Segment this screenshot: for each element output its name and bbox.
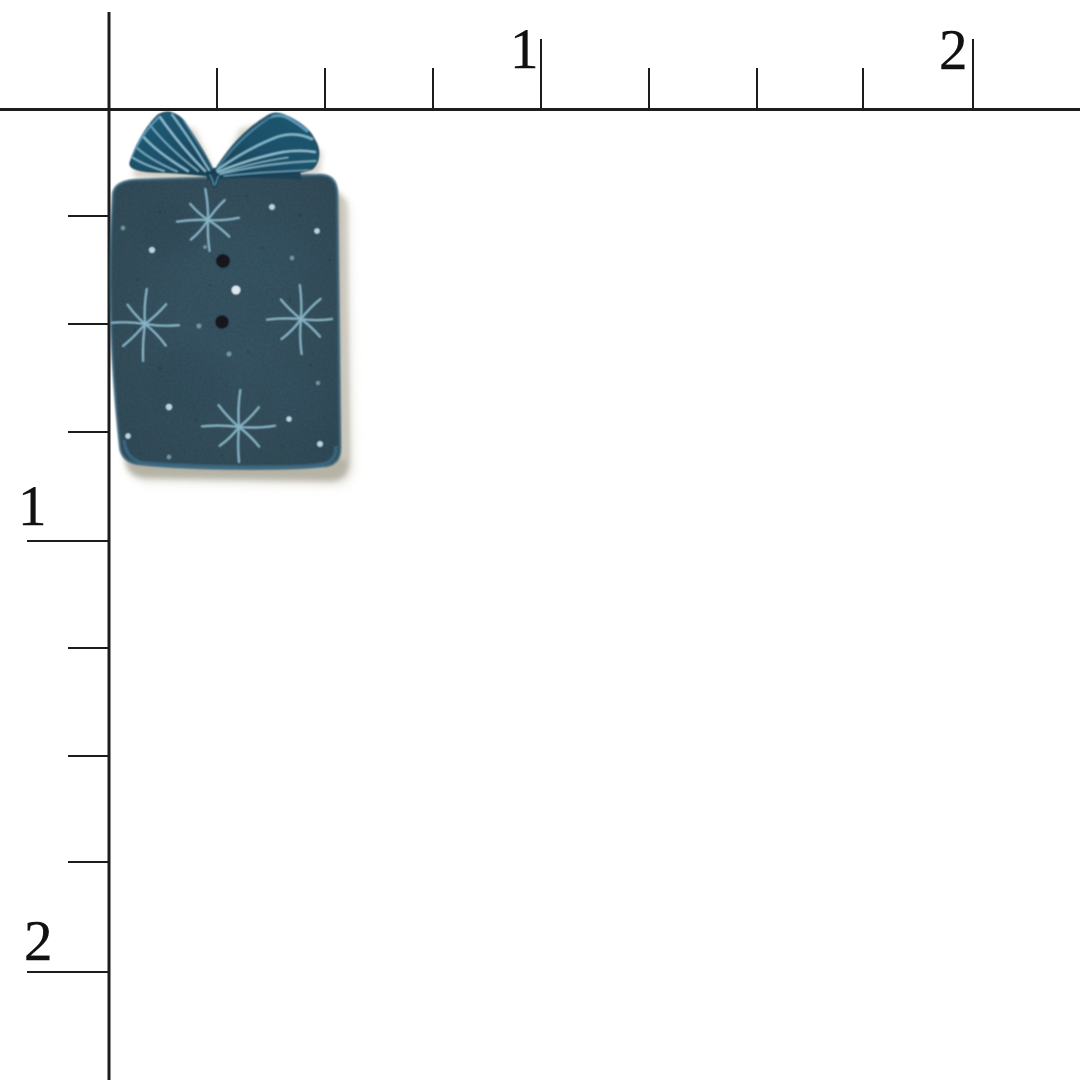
svg-text:2: 2 [939,19,968,82]
svg-text:1: 1 [18,475,47,538]
svg-text:1: 1 [510,18,539,81]
svg-text:2: 2 [24,910,53,973]
